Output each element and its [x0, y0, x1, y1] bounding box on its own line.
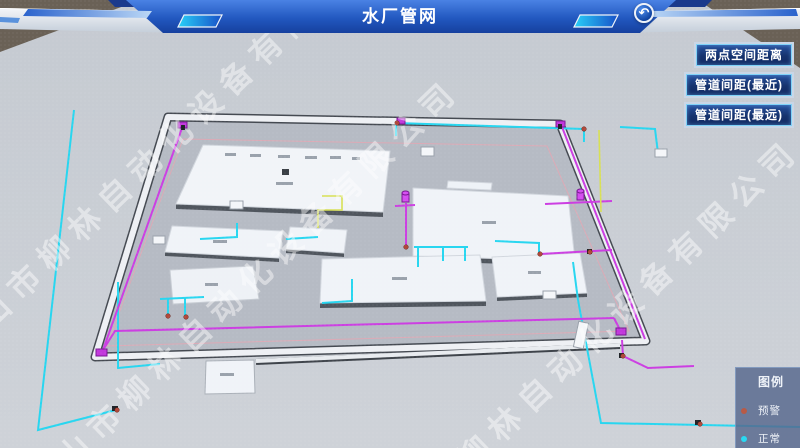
page-title: 水厂管网 — [362, 6, 438, 26]
header-bar: 水厂管网 — [0, 0, 800, 34]
header-badge-right — [574, 15, 618, 27]
app-window: 唐山市柳林自动化设备有限公司 唐山市柳林自动化设备有限公司 唐山市柳林自动化设备… — [0, 0, 800, 448]
legend-item-warning: 预警 — [741, 403, 800, 418]
scene-canvas[interactable]: 唐山市柳林自动化设备有限公司 唐山市柳林自动化设备有限公司 唐山市柳林自动化设备… — [0, 0, 800, 448]
back-button[interactable]: ↶ — [634, 3, 654, 23]
normal-dot-icon — [741, 436, 747, 442]
measure-toolbar: 两点空间距离 管道间距(最近) 管道间距(最远) — [686, 44, 792, 126]
legend-panel: 图例 预警 正常 离线 — [735, 367, 800, 448]
pipe-spacing-nearest-button[interactable]: 管道间距(最近) — [686, 74, 792, 96]
header-badge-left — [178, 15, 222, 27]
halftone-overlay — [0, 0, 800, 448]
legend-item-normal: 正常 — [741, 431, 800, 446]
pipe-spacing-farthest-button[interactable]: 管道间距(最远) — [686, 104, 792, 126]
warning-dot-icon — [741, 408, 747, 414]
legend-title: 图例 — [758, 373, 800, 390]
back-icon: ↶ — [639, 5, 650, 20]
two-point-distance-button[interactable]: 两点空间距离 — [696, 44, 792, 66]
